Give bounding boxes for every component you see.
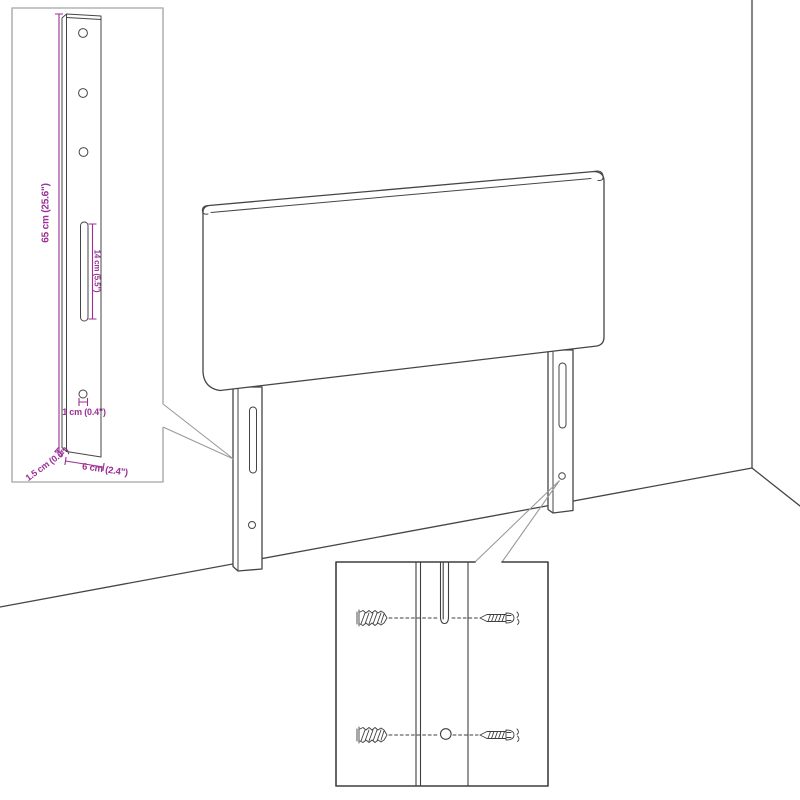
left-leg-hole [249,522,256,529]
inset-slot [81,222,89,321]
inset-leg-side-face [62,14,67,452]
right-leg-slot [559,363,566,428]
diagram-canvas: 65 cm (25.6") 14 cm (5.5") 1 cm (0.4") 1… [0,0,800,800]
callout-left-inset [163,404,234,459]
inset-hole-3 [79,148,88,157]
inset-hole-2 [79,89,88,98]
inset-bottom-fill [337,563,547,785]
dim-label-hole-diameter: 1 cm (0.4") [62,407,106,417]
inset-bottom-hole [79,390,87,398]
dim-label-leg-height: 65 cm (25.6") [41,183,52,242]
left-leg-body [233,387,262,571]
callout-lines-left [163,404,234,459]
headboard-panel-outline [203,172,604,391]
right-leg-hole [559,473,566,480]
inset-mounting-detail [336,562,548,786]
inset-hole-1 [79,29,88,38]
callout-bottom-inset [475,481,560,563]
headboard-panel [202,171,604,390]
left-leg [233,387,262,571]
left-leg-slot [250,407,257,473]
callout-lines-bottom [475,481,560,563]
dim-label-slot-length: 14 cm (5.5") [93,250,102,293]
headboard-diagram [0,0,800,800]
